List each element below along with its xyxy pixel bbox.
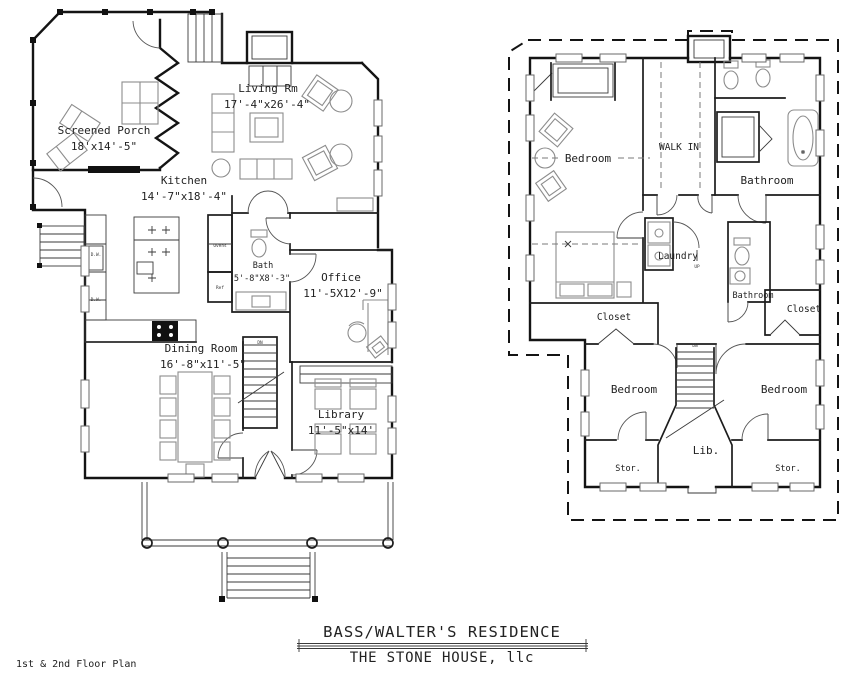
f1-office-walls: [290, 250, 392, 362]
f2-bottom-step: [688, 487, 716, 493]
f1-office-desk: [348, 300, 388, 355]
room-label-stor-left: Stor.: [615, 464, 641, 474]
room-label-stor-right: Stor.: [775, 464, 801, 474]
f2-stor-right-door-arc: [742, 414, 768, 440]
f1-kitchen-island: [134, 217, 179, 293]
f2-walkin-walls: [643, 58, 715, 195]
f2-closet-rods: [661, 62, 700, 188]
f2-small-bath-fixtures: [730, 238, 750, 284]
f1-window-seat-cabinet: [337, 198, 373, 211]
f2-laundry: [645, 218, 673, 270]
room-dims-office: 11'-5X12'-9": [303, 287, 382, 300]
firm-name: THE STONE HOUSE, llc: [350, 650, 535, 666]
room-label-closet-left: Closet: [597, 312, 631, 323]
f1-front-door-arcs: [255, 451, 285, 478]
f2-master-bed: [556, 232, 631, 298]
f1-stairs: [238, 337, 284, 428]
project-title: BASS/WALTER'S RESIDENCE: [323, 623, 561, 641]
f2-stairs-dn-label: DN: [692, 343, 698, 349]
room-label-bath: Bath: [253, 261, 273, 271]
f2-shower: [717, 112, 772, 162]
room-label-office: Office: [321, 271, 361, 284]
title-block: BASS/WALTER'S RESIDENCE THE STONE HOUSE,…: [297, 623, 588, 666]
room-label-closet-right: Closet: [787, 304, 821, 315]
plan-note: 1st & 2nd Floor Plan: [16, 659, 136, 670]
f2-closet-left-doors: [598, 329, 634, 344]
f1-bath-walls: [232, 213, 290, 362]
room-label-bathroom-small: Bathroom: [733, 291, 774, 301]
room-label-walk-in: WALK IN: [659, 142, 699, 153]
f1-deck-door-arc: [33, 178, 62, 207]
f1-french-doors: [248, 191, 288, 213]
room-dims-dining-room: 16'-8"x11'-5": [160, 358, 246, 371]
f2-stor-left-door-arc: [618, 412, 646, 440]
room-label-dining-room: Dining Room: [165, 342, 238, 355]
f2-laundry-door-arc: [673, 222, 699, 248]
f2-master-door-arc: [617, 212, 643, 238]
room-label-bedroom-master: Bedroom: [565, 152, 612, 165]
f2-bathtub: [788, 110, 818, 166]
room-dims-kitchen: 14'-7"x18'-4": [141, 190, 227, 203]
f2-window-seat: [551, 63, 615, 100]
room-dims-living-rm: 17'-4"x26'-4": [224, 98, 310, 111]
first-floor-plan: Ovens Ref: [30, 9, 396, 602]
f1-bath-vanity: [236, 292, 286, 310]
f1-library-door-arc: [292, 450, 317, 475]
ref-label: Ref: [216, 285, 224, 291]
room-dims-library: 11'-5"x14': [308, 424, 374, 437]
f1-side-steps: [188, 14, 222, 62]
room-label-laundry: Laundry: [658, 251, 698, 262]
dw-label-1: D.W.: [91, 252, 102, 258]
ovens-label: Ovens: [213, 243, 227, 249]
f1-sliding-door: [88, 166, 140, 173]
dw-label-2: D.W.: [91, 297, 102, 303]
f2-bedroom-left-door-arc: [653, 344, 677, 368]
f2-windows: [526, 54, 824, 491]
f1-bay-window: [247, 32, 292, 86]
floor-plan-sheet: Ovens Ref: [0, 0, 860, 679]
f2-small-bath-walls: [728, 222, 770, 302]
f2-walkin-door-arcs: [657, 195, 712, 215]
f1-folding-glass-wall: [156, 20, 178, 168]
f1-hall-wall: [232, 196, 378, 213]
room-label-kitchen: Kitchen: [161, 174, 207, 187]
f2-walkin-door-leaves: [657, 195, 712, 215]
f2-stairs: [658, 348, 732, 487]
f2-closet-right-doors: [770, 320, 800, 335]
f1-stove: [152, 321, 178, 341]
f1-deck-steps: [37, 223, 84, 268]
f1-bath-door-arc: [266, 218, 290, 244]
room-label-library: Library: [318, 408, 365, 421]
f2-toilets: [724, 60, 770, 89]
room-label-living-rm: Living Rm: [238, 82, 298, 95]
f2-up-label: UP: [694, 264, 700, 270]
room-label-bathroom-main: Bathroom: [741, 174, 794, 187]
floor-plan-drawing: Ovens Ref: [0, 0, 860, 679]
f2-exterior-walls: [530, 58, 820, 487]
f2-roof-outline: [509, 31, 838, 520]
f1-front-porch: [142, 482, 393, 602]
room-label-bedroom-left: Bedroom: [611, 383, 658, 396]
f1-office-door-arc: [290, 254, 316, 282]
f1-stairs-dn-label: DN: [257, 340, 263, 346]
second-floor-plan: UP DN: [509, 31, 838, 520]
f1-porch-door-arc: [133, 21, 160, 48]
room-label-bedroom-right: Bedroom: [761, 383, 808, 396]
room-label-lib: Lib.: [693, 444, 720, 457]
room-label-screened-porch: Screened Porch: [58, 124, 151, 137]
f1-toilet: [251, 230, 267, 257]
f1-office-side-table: [367, 336, 390, 358]
f2-bedroom-right-door-arc: [716, 344, 746, 374]
f2-small-bath-door-arc: [728, 302, 748, 322]
f2-bathroom-door-arc: [738, 195, 766, 223]
f2-chimney: [688, 36, 730, 62]
f1-dining-table-chairs: [160, 372, 230, 477]
room-dims-screened-porch: 18'x14'-5": [71, 140, 137, 153]
f1-front-door-leaves: [255, 451, 285, 478]
room-dims-bath: 5'-8"X8'-3": [234, 274, 290, 284]
